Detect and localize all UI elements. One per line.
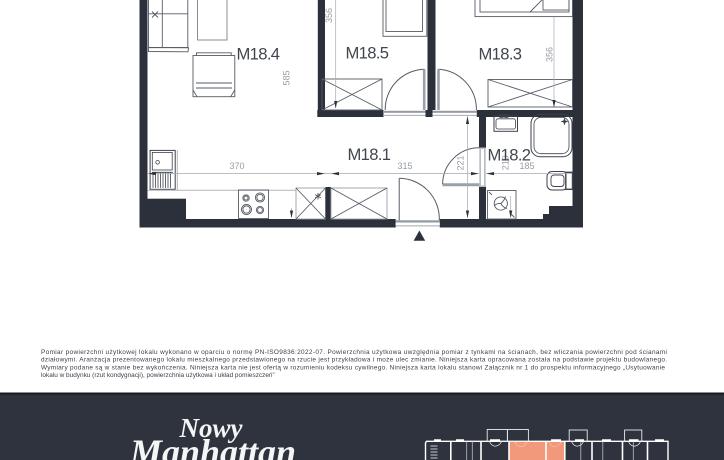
svg-text:356: 356 (544, 47, 554, 62)
svg-text:585: 585 (281, 70, 291, 85)
svg-text:Wymiary podane są w stanie bez: Wymiary podane są w stanie bez wykończen… (41, 364, 665, 371)
svg-text:221: 221 (456, 155, 466, 170)
svg-text:lokalu w budynku (rzut kondygn: lokalu w budynku (rzut kondygnacji), pow… (41, 372, 275, 379)
svg-text:M18.4: M18.4 (237, 45, 280, 64)
svg-text:370: 370 (230, 161, 245, 171)
svg-text:Pomiar powierzchni użytkowej l: Pomiar powierzchni użytkowej lokalu wyko… (41, 349, 667, 356)
svg-text:356: 356 (324, 8, 334, 23)
svg-text:Manhattan: Manhattan (129, 432, 296, 460)
svg-text:M18.2: M18.2 (488, 146, 531, 165)
svg-text:M18.1: M18.1 (348, 145, 391, 164)
svg-text:315: 315 (398, 161, 413, 171)
svg-text:działowymi. Aranżacja prezento: działowymi. Aranżacja prezentowanego lok… (41, 357, 667, 364)
svg-text:M18.5: M18.5 (346, 44, 389, 63)
svg-text:M18.3: M18.3 (479, 45, 522, 64)
